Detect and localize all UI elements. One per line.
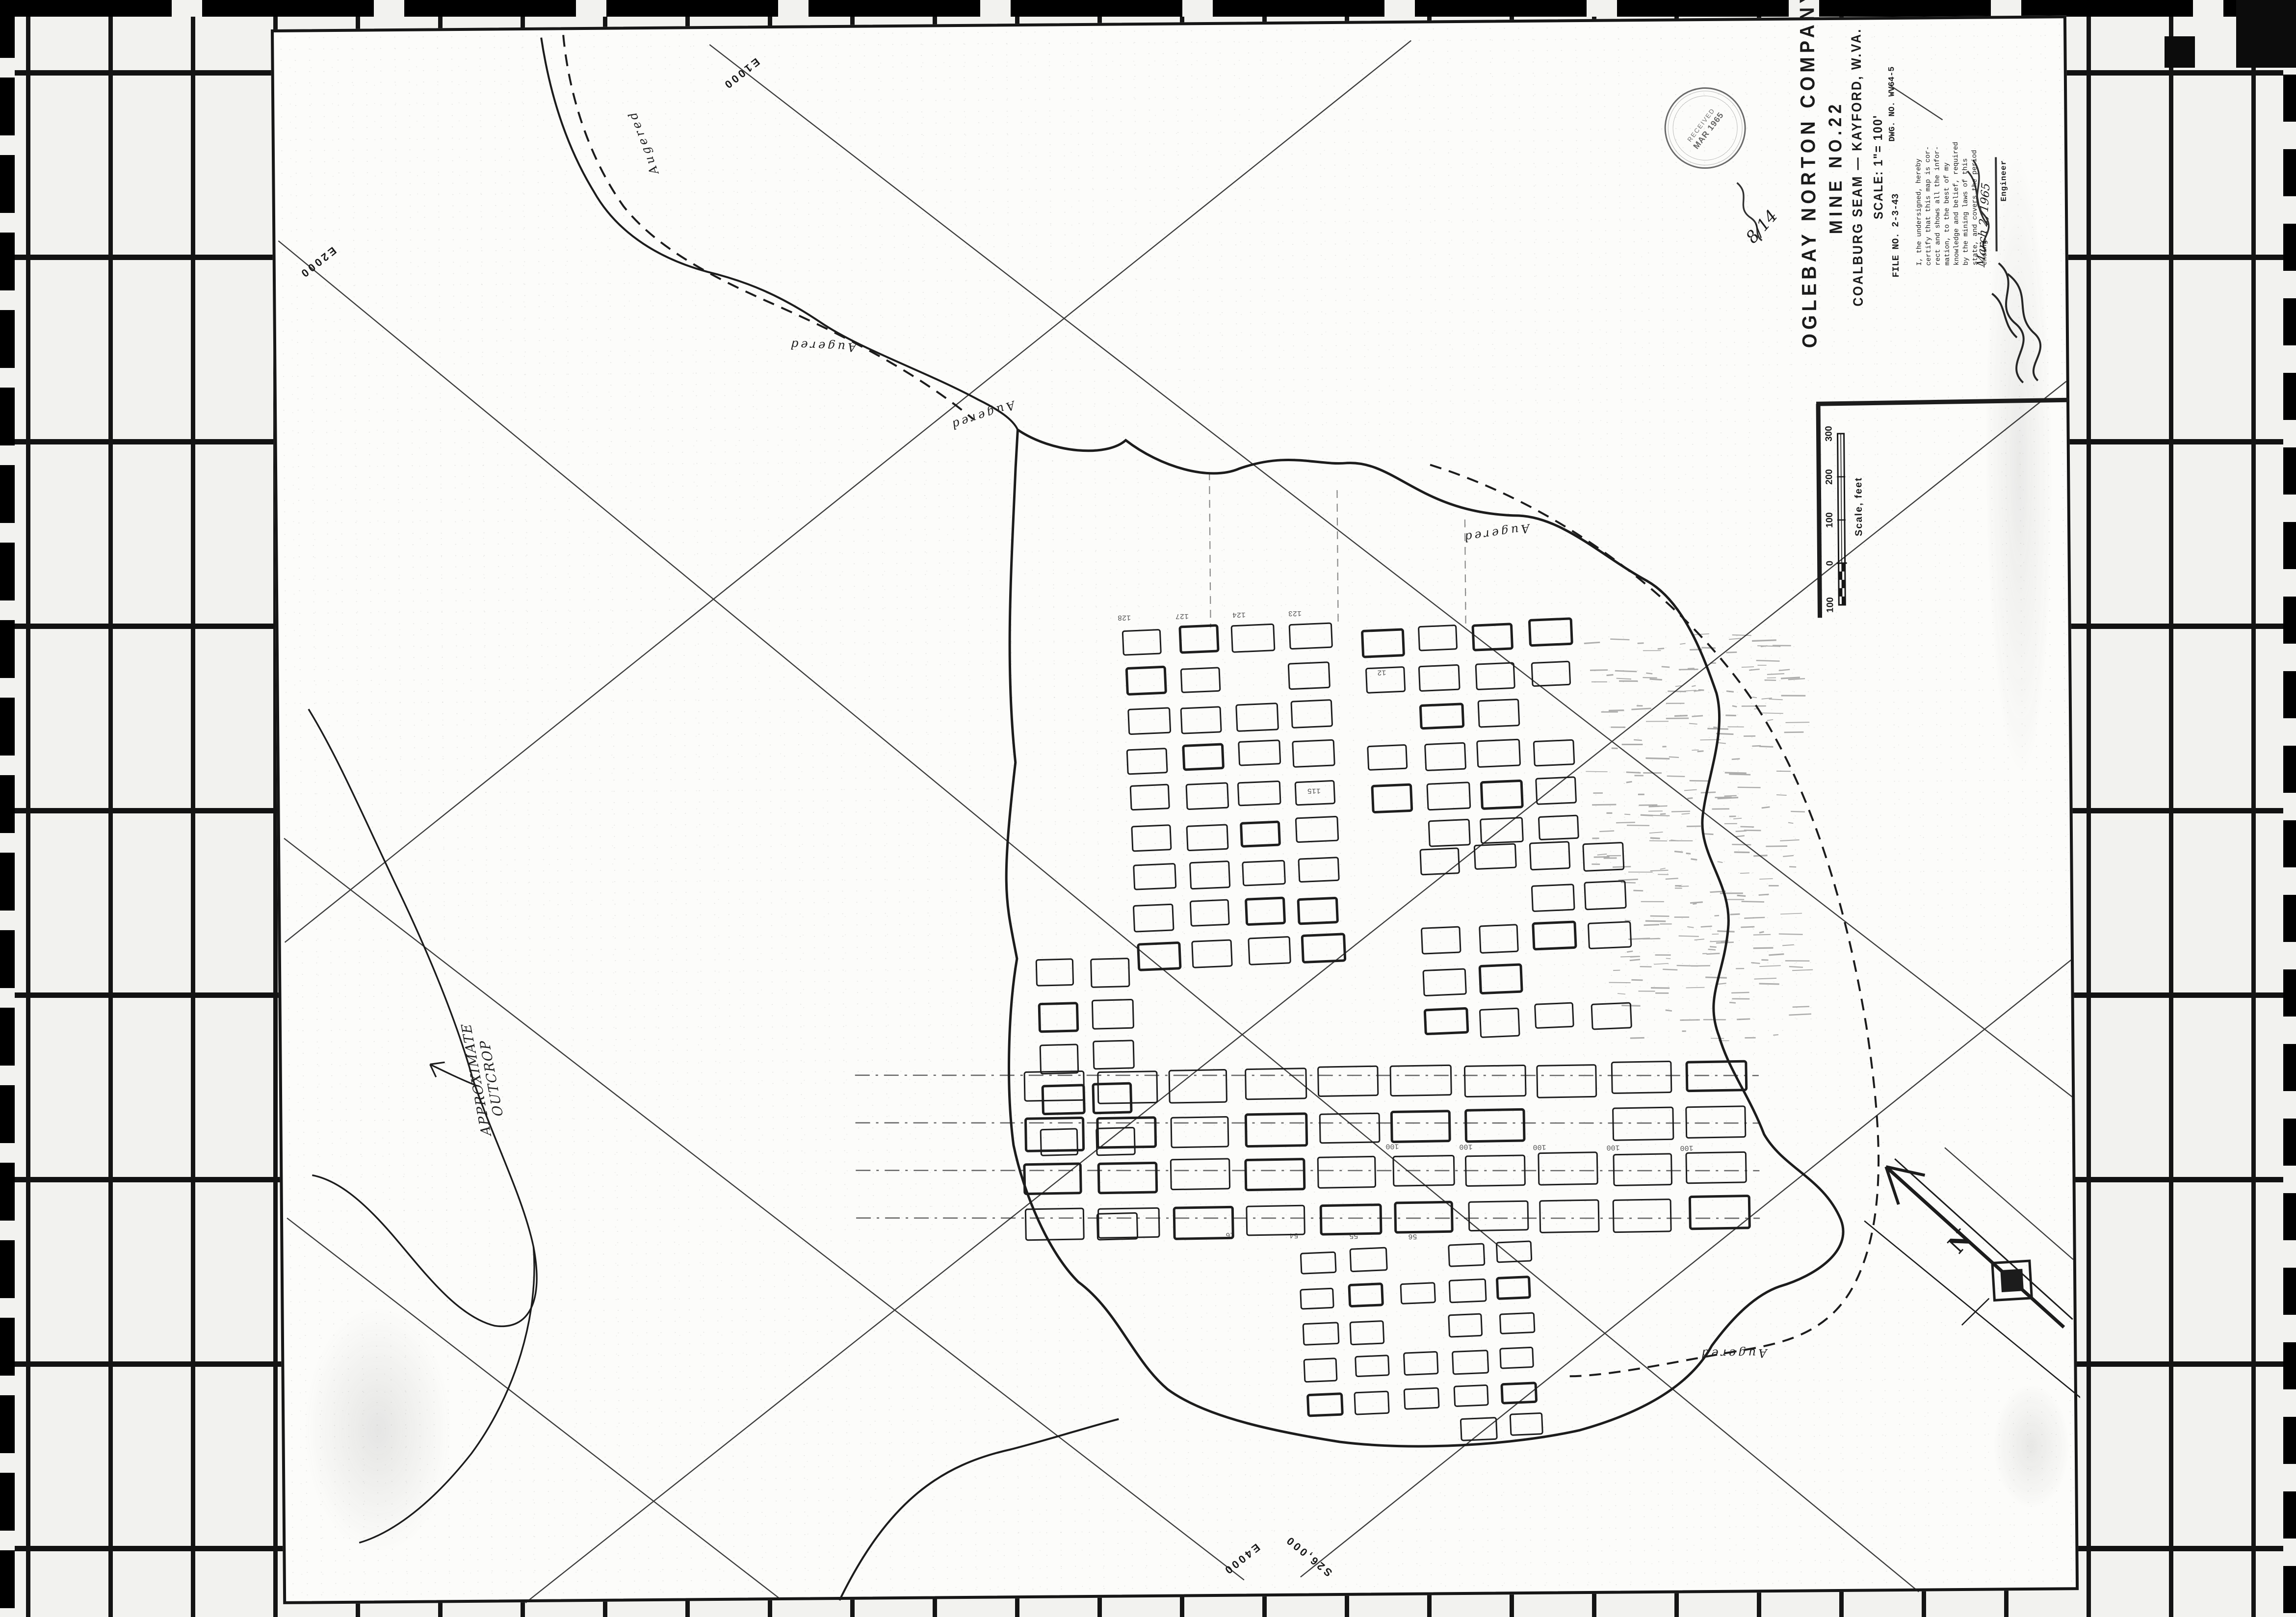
mine-boundary-line xyxy=(1003,423,1845,1450)
survey-station-number: 128 xyxy=(1118,613,1131,622)
survey-arrow xyxy=(1864,1219,2082,1429)
scale-tick-label: 0 xyxy=(1825,561,1836,566)
certification-line: mation, to the best of my xyxy=(1942,134,1953,265)
file-number: FILE NO. 2-3-43 xyxy=(1890,193,1902,277)
augered-label: Augered xyxy=(1699,1346,1767,1360)
scanner-edge-top xyxy=(0,0,2296,17)
seam-location: COALBURG SEAM — KAYFORD, W.VA. xyxy=(1849,28,1867,307)
scanner-edge-right xyxy=(2283,0,2296,1617)
outcrop-line xyxy=(541,34,1018,434)
scanner-corner-block xyxy=(2165,36,2195,68)
certification-line: by the mining laws of this xyxy=(1961,134,1971,265)
engineer-label: Engineer xyxy=(1999,160,2009,202)
room-and-pillar-workings xyxy=(1019,617,1751,1444)
survey-station-number: 55 xyxy=(1349,1231,1358,1240)
approximate-outcrop-line xyxy=(357,1247,537,1543)
certification-line: certify that this map is cor- xyxy=(1924,134,1934,265)
survey-station-number: 100 xyxy=(1680,1144,1693,1152)
faded-workings xyxy=(1584,633,1814,1042)
scanner-corner-block xyxy=(2236,0,2296,68)
survey-station-number: 127 xyxy=(1175,612,1189,620)
survey-station-number: 124 xyxy=(1232,610,1246,619)
scale-tick-label: 100 xyxy=(1825,597,1836,613)
survey-station-number: 12 xyxy=(1377,668,1386,677)
survey-station-number: 115 xyxy=(1307,786,1321,795)
mine-number: MINE NO.22 xyxy=(1825,101,1847,235)
survey-station-number: 100 xyxy=(1459,1142,1472,1150)
certification-line: I, the undersigned, hereby xyxy=(1914,134,1925,266)
company-title: OGLEBAY NORTON COMPANY xyxy=(1796,0,1822,348)
map-sheet: OGLEBAY NORTON COMPANY MINE NO.22 COALBU… xyxy=(271,15,2079,1604)
survey-station-number: 16 xyxy=(1226,1230,1234,1239)
survey-station-number: 56 xyxy=(1408,1232,1417,1240)
survey-station-number: 100 xyxy=(1533,1143,1546,1151)
entry-centerlines xyxy=(855,1068,1760,1225)
certification-line: knowledge and belief, required xyxy=(1952,134,1962,265)
scale-bar: 1000100200300 Scale, feet xyxy=(1824,401,1861,613)
scanner-edge-left xyxy=(0,0,15,1617)
augered-dashed-line xyxy=(1430,461,1880,1377)
drawing-number: DWG. NO. WV64-5 xyxy=(1887,66,1897,141)
boundary-connector xyxy=(838,1419,1120,1600)
north-arrow xyxy=(1886,1157,2073,1329)
scale-tick-label: 300 xyxy=(1824,426,1834,442)
scale-bar-labels: 1000100200300 xyxy=(1824,401,1836,612)
survey-station-number: 123 xyxy=(1288,609,1302,617)
scale-bar-graphic xyxy=(1834,401,1849,612)
map-scale-note: SCALE: 1"= 100' xyxy=(1870,114,1886,219)
certification-line: rect and shows all the infor- xyxy=(1933,134,1943,265)
scale-tick-label: 200 xyxy=(1824,469,1835,485)
survey-station-number: 54 xyxy=(1289,1231,1298,1239)
survey-station-number: 100 xyxy=(1385,1142,1399,1150)
scanned-mine-map: OGLEBAY NORTON COMPANY MINE NO.22 COALBU… xyxy=(0,0,2296,1617)
scale-tick-label: 100 xyxy=(1825,512,1835,528)
margin-signature-scribble xyxy=(1992,263,2041,383)
scale-bar-caption: Scale, feet xyxy=(1852,401,1865,612)
approximate-outcrop-line xyxy=(309,707,537,1328)
survey-station-number: 100 xyxy=(1606,1143,1619,1151)
